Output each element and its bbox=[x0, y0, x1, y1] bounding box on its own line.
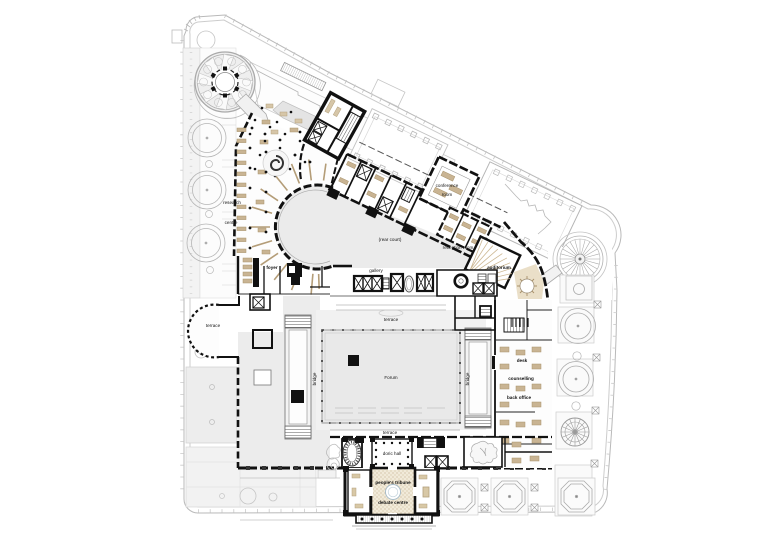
svg-text:room: room bbox=[442, 192, 453, 197]
svg-text:gallery: gallery bbox=[369, 268, 383, 273]
svg-text:Forum: Forum bbox=[384, 375, 397, 380]
svg-text:terrace: terrace bbox=[384, 317, 399, 322]
svg-text:doric hall: doric hall bbox=[383, 451, 401, 456]
svg-text:bridge: bridge bbox=[312, 372, 317, 385]
svg-text:conference: conference bbox=[436, 183, 459, 188]
svg-text:people's tribune: people's tribune bbox=[375, 480, 411, 485]
svg-text:research: research bbox=[223, 200, 241, 205]
svg-text:back office: back office bbox=[507, 395, 531, 400]
svg-text:(rear court): (rear court) bbox=[379, 237, 402, 242]
svg-text:foyer: foyer bbox=[266, 265, 277, 270]
svg-text:bridge: bridge bbox=[465, 372, 470, 385]
svg-text:counselling: counselling bbox=[508, 376, 534, 381]
svg-text:centre: centre bbox=[225, 220, 238, 225]
svg-text:terrace: terrace bbox=[206, 323, 221, 328]
svg-text:terrace: terrace bbox=[383, 430, 398, 435]
svg-text:desk: desk bbox=[517, 358, 528, 363]
svg-text:reception room: reception room bbox=[443, 245, 474, 250]
svg-text:debate centre: debate centre bbox=[378, 500, 408, 505]
